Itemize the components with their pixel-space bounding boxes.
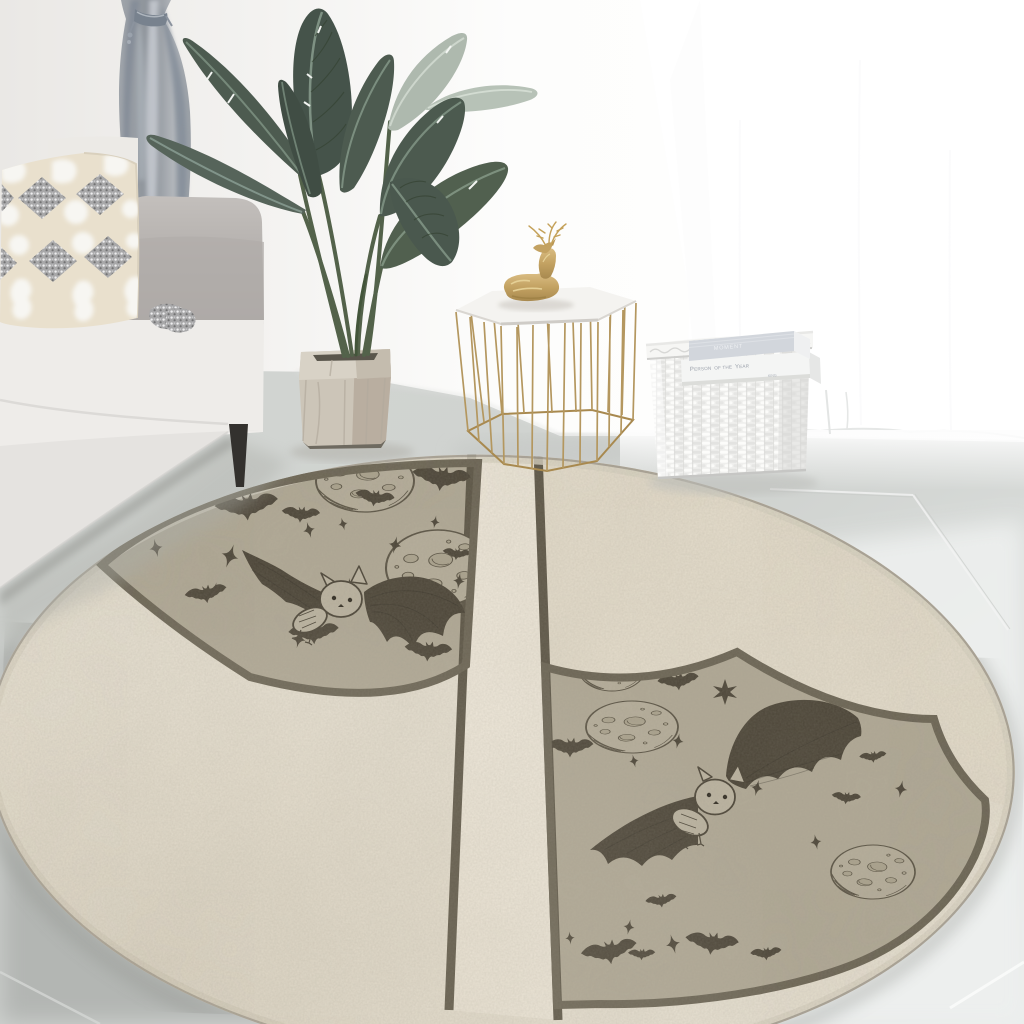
svg-text:KING: KING (768, 373, 777, 378)
